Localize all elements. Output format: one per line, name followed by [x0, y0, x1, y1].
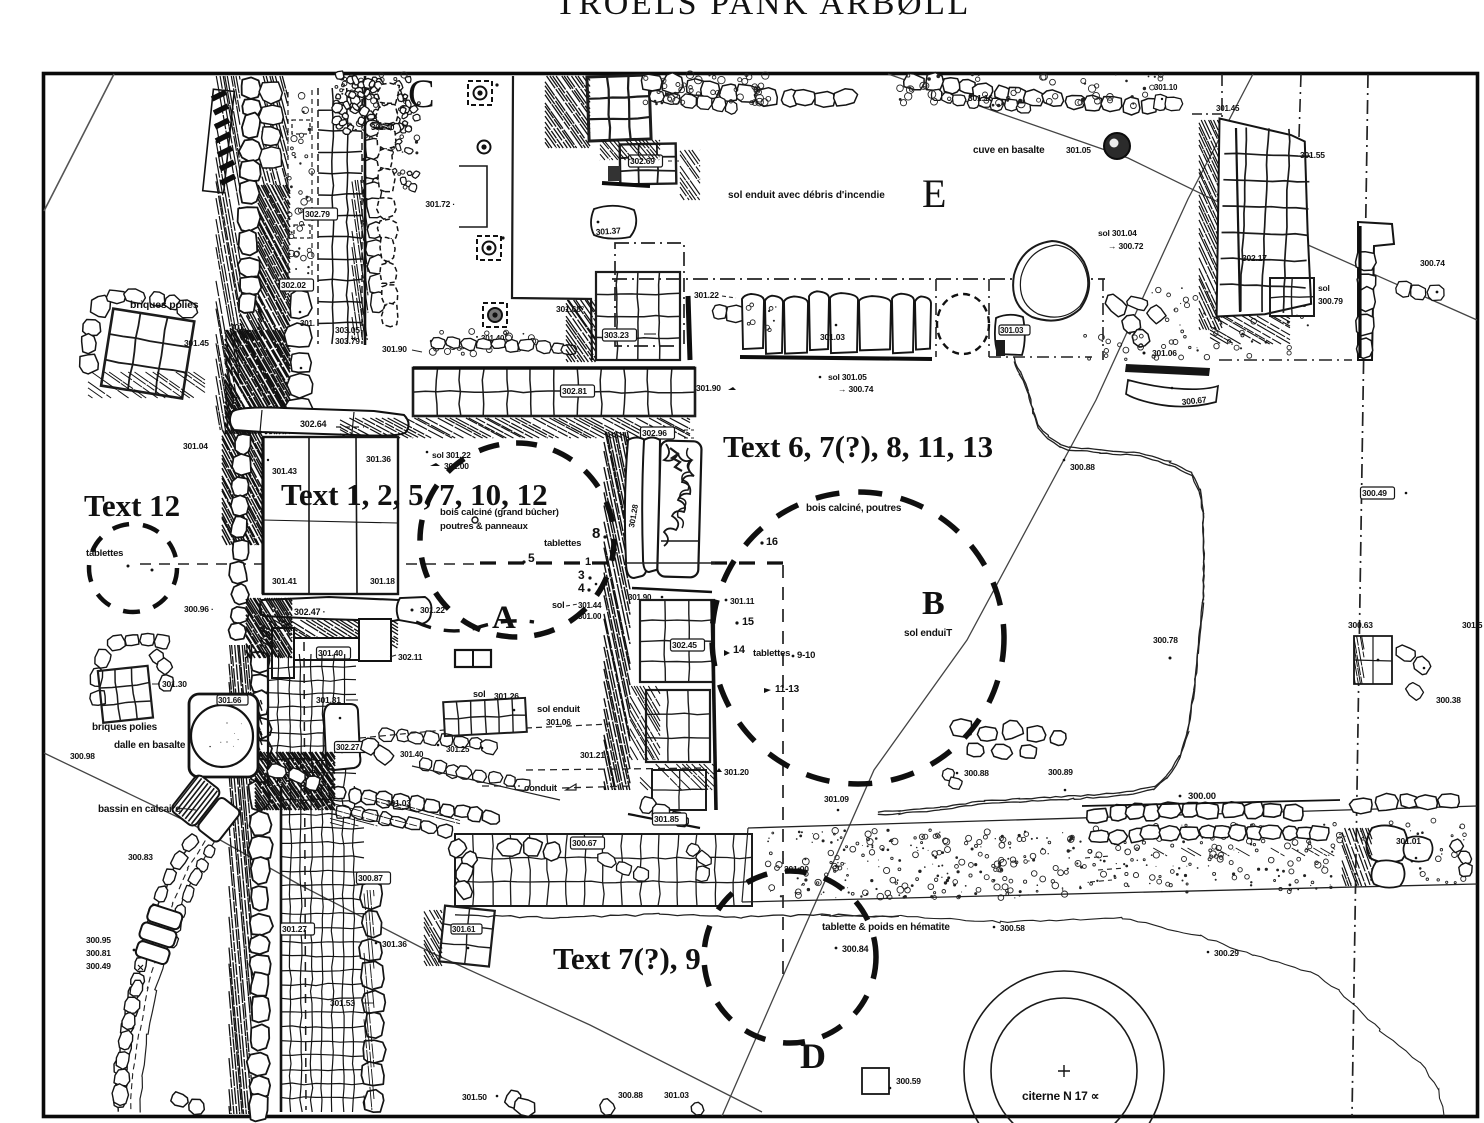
- svg-text:301.: 301.: [230, 322, 246, 332]
- svg-text:301.21: 301.21: [580, 750, 605, 760]
- svg-text:tablettes: tablettes: [544, 538, 581, 549]
- svg-text:302.79: 302.79: [305, 209, 330, 219]
- svg-text:301.45: 301.45: [184, 338, 209, 348]
- svg-text:4: 4: [578, 581, 585, 595]
- svg-text:14: 14: [733, 644, 746, 656]
- svg-text:dalle en basalte: dalle en basalte: [114, 740, 186, 751]
- svg-text:300.89: 300.89: [1048, 767, 1073, 777]
- svg-text:D: D: [800, 1036, 826, 1076]
- svg-text:1: 1: [585, 556, 591, 568]
- svg-text:300.84: 300.84: [842, 944, 869, 954]
- svg-text:300.95: 300.95: [86, 935, 111, 945]
- svg-text:301.27: 301.27: [282, 924, 307, 934]
- svg-text:11-13: 11-13: [775, 684, 800, 695]
- svg-text:300.67: 300.67: [572, 838, 597, 848]
- svg-text:301.50: 301.50: [462, 1092, 487, 1102]
- svg-text:301.22: 301.22: [420, 605, 445, 615]
- svg-text:300.88: 300.88: [618, 1090, 643, 1100]
- svg-text:16: 16: [766, 536, 778, 548]
- svg-text:301.55: 301.55: [1300, 150, 1325, 160]
- svg-text:301.26: 301.26: [494, 691, 519, 701]
- svg-text:300.79: 300.79: [1318, 296, 1343, 306]
- svg-text:Text 6, 7(?), 8, 11, 13: Text 6, 7(?), 8, 11, 13: [723, 429, 993, 464]
- svg-text:300.74: 300.74: [1420, 258, 1445, 268]
- svg-text:302.17: 302.17: [1242, 253, 1267, 263]
- svg-text:301.22: 301.22: [694, 290, 719, 300]
- svg-text:300.88: 300.88: [964, 768, 989, 778]
- svg-text:301.25: 301.25: [446, 745, 470, 754]
- svg-text:301.85: 301.85: [654, 814, 679, 824]
- svg-text:sol 301.22: sol 301.22: [432, 450, 471, 460]
- svg-text:302.11: 302.11: [398, 652, 423, 662]
- svg-text:302.64: 302.64: [300, 419, 327, 429]
- svg-text:300.38: 300.38: [1436, 695, 1461, 705]
- svg-text:15: 15: [742, 616, 754, 628]
- svg-text:301.05: 301.05: [1066, 145, 1091, 155]
- svg-text:301.45: 301.45: [1216, 104, 1240, 113]
- svg-text:301.53: 301.53: [330, 998, 355, 1008]
- svg-text:→ 300.74: → 300.74: [838, 384, 874, 394]
- svg-text:300.00: 300.00: [1188, 791, 1216, 802]
- svg-text:tablettes: tablettes: [753, 648, 790, 659]
- svg-text:E: E: [922, 171, 946, 216]
- svg-text:C: C: [408, 71, 434, 116]
- svg-text:301.43: 301.43: [272, 466, 297, 476]
- svg-text:300.87: 300.87: [358, 873, 383, 883]
- svg-text:301.04: 301.04: [183, 441, 208, 451]
- svg-text:300.83: 300.83: [128, 852, 153, 862]
- svg-text:301.36: 301.36: [366, 454, 391, 464]
- svg-text:302.81: 302.81: [562, 386, 587, 396]
- svg-text:301.18: 301.18: [370, 576, 395, 586]
- svg-text:300.58: 300.58: [1000, 923, 1025, 933]
- svg-text:301.68°: 301.68°: [556, 304, 585, 314]
- svg-text:301.: 301.: [300, 319, 315, 328]
- svg-text:301.11: 301.11: [730, 596, 755, 606]
- svg-text:301.90: 301.90: [382, 344, 407, 354]
- svg-text:300.63: 300.63: [1348, 620, 1373, 630]
- svg-text:302.69: 302.69: [630, 156, 655, 166]
- svg-text:→ 300.72: → 300.72: [1108, 241, 1144, 251]
- svg-text:bois calciné, poutres: bois calciné, poutres: [806, 503, 902, 514]
- svg-text:300.88: 300.88: [1070, 462, 1095, 472]
- svg-text:303.05: 303.05: [335, 325, 360, 335]
- svg-text:301.01: 301.01: [1396, 836, 1421, 846]
- svg-text:301.37: 301.37: [595, 225, 621, 237]
- svg-text:briques polies: briques polies: [130, 299, 199, 311]
- svg-text:citerne N 17 ∝: citerne N 17 ∝: [1022, 1089, 1099, 1103]
- svg-text:301.03: 301.03: [820, 332, 845, 342]
- svg-text:303.79: 303.79: [335, 336, 360, 346]
- svg-text:8: 8: [592, 525, 600, 542]
- svg-text:301.90: 301.90: [696, 383, 721, 393]
- svg-text:301.41: 301.41: [272, 576, 297, 586]
- svg-text:conduit: conduit: [524, 783, 558, 794]
- svg-text:302.02: 302.02: [281, 280, 306, 290]
- svg-text:301.36: 301.36: [382, 939, 407, 949]
- svg-text:B: B: [922, 585, 944, 622]
- svg-text:Text 12: Text 12: [84, 488, 180, 523]
- svg-text:301.40: 301.40: [400, 750, 424, 759]
- svg-text:301.72 ·: 301.72 ·: [425, 199, 455, 209]
- svg-text:sol enduit avec débris d'incen: sol enduit avec débris d'incendie: [728, 190, 885, 201]
- svg-text:300.29: 300.29: [1214, 948, 1239, 958]
- svg-text:302.47 ·: 302.47 ·: [294, 607, 325, 617]
- svg-text:301.66: 301.66: [218, 696, 242, 705]
- svg-text:300.49: 300.49: [1362, 488, 1387, 498]
- svg-text:sol enduit: sol enduit: [537, 704, 581, 715]
- svg-text:sol enduiT: sol enduiT: [904, 628, 952, 639]
- svg-text:300.49: 300.49: [86, 961, 111, 971]
- svg-text:Text 7(?), 9: Text 7(?), 9: [553, 941, 701, 976]
- svg-text:300.81: 300.81: [86, 948, 111, 958]
- svg-text:301.06: 301.06: [1152, 348, 1177, 358]
- svg-text:A: A: [492, 600, 516, 636]
- svg-text:301.03: 301.03: [664, 1090, 689, 1100]
- svg-text:sol: sol: [552, 600, 564, 610]
- svg-text:TROELS PANK ARBØLL: TROELS PANK ARBØLL: [555, 0, 971, 22]
- svg-text:briques polies: briques polies: [92, 722, 158, 733]
- svg-text:300.59: 300.59: [896, 1076, 921, 1086]
- svg-text:301.30: 301.30: [162, 679, 187, 689]
- svg-text:300.96 ·: 300.96 ·: [184, 604, 214, 614]
- svg-text:cuve en basalte: cuve en basalte: [973, 145, 1045, 156]
- svg-text:301.09: 301.09: [824, 794, 849, 804]
- svg-text:5: 5: [528, 551, 535, 565]
- svg-text:poutres & panneaux: poutres & panneaux: [440, 521, 529, 532]
- svg-text:302.96: 302.96: [642, 428, 667, 438]
- svg-text:303.23: 303.23: [604, 330, 629, 340]
- svg-text:sol 301.04: sol 301.04: [1098, 228, 1137, 238]
- svg-text:bassin en calcaire: bassin en calcaire: [98, 804, 181, 815]
- svg-text:sol 301.05: sol 301.05: [828, 372, 867, 382]
- svg-text:301.03: 301.03: [386, 798, 411, 808]
- svg-text:302.27: 302.27: [336, 743, 360, 752]
- svg-text:300.78: 300.78: [1153, 635, 1178, 645]
- svg-text:300.98: 300.98: [70, 751, 95, 761]
- svg-text:301.03: 301.03: [1000, 326, 1024, 335]
- svg-text:sol: sol: [473, 689, 485, 699]
- svg-text:301.16: 301.16: [968, 93, 993, 103]
- svg-text:3: 3: [578, 568, 585, 582]
- svg-text:301.61: 301.61: [452, 925, 476, 934]
- svg-text:301.5: 301.5: [1462, 620, 1483, 630]
- svg-text:302.45: 302.45: [672, 640, 697, 650]
- svg-text:Text 1, 2, 5, 7, 10, 12: Text 1, 2, 5, 7, 10, 12: [281, 477, 548, 512]
- svg-text:301.20: 301.20: [724, 767, 749, 777]
- svg-text:301.10: 301.10: [1154, 83, 1178, 92]
- svg-text:tablette & poids en hématite: tablette & poids en hématite: [822, 922, 950, 933]
- svg-text:9-10: 9-10: [797, 650, 815, 661]
- svg-text:sol: sol: [1318, 283, 1330, 293]
- svg-text:301.40: 301.40: [371, 123, 395, 132]
